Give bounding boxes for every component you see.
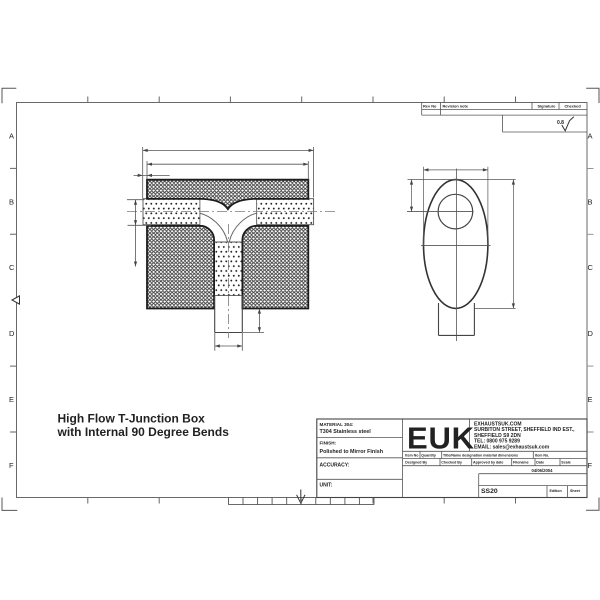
- svg-text:SS20: SS20: [481, 488, 498, 495]
- svg-text:F: F: [9, 461, 14, 470]
- svg-text:EUK: EUK: [407, 420, 475, 455]
- svg-text:E: E: [9, 395, 14, 404]
- svg-text:Filename: Filename: [513, 460, 529, 464]
- svg-text:High Flow T-Junction Box: High Flow T-Junction Box: [58, 412, 206, 426]
- svg-text:Designed By: Designed By: [405, 460, 427, 464]
- svg-text:T304 Stainless steel: T304 Stainless steel: [320, 429, 372, 435]
- svg-text:A: A: [9, 131, 14, 140]
- svg-text:Checked: Checked: [565, 104, 582, 109]
- svg-text:Signature: Signature: [538, 104, 557, 109]
- svg-text:Title/Name designation materia: Title/Name designation material dimensio…: [443, 453, 518, 457]
- svg-text:Item No.: Item No.: [535, 453, 549, 457]
- svg-text:B: B: [588, 197, 593, 206]
- svg-text:D: D: [588, 329, 594, 338]
- svg-text:Item No: Item No: [405, 453, 419, 457]
- svg-text:0.8: 0.8: [557, 120, 564, 126]
- svg-text:Date: Date: [536, 460, 544, 464]
- svg-text:Scale: Scale: [561, 460, 570, 464]
- svg-text:Approved by date: Approved by date: [473, 460, 503, 464]
- svg-text:C: C: [588, 263, 594, 272]
- svg-text:UNIT:: UNIT:: [320, 483, 333, 489]
- svg-text:Edition: Edition: [550, 489, 562, 493]
- svg-text:B: B: [9, 197, 14, 206]
- svg-text:A: A: [588, 131, 593, 140]
- svg-text:EMAIL: sales@exhaustsuk.com: EMAIL: sales@exhaustsuk.com: [474, 445, 550, 451]
- svg-text:D: D: [9, 329, 15, 338]
- svg-text:F: F: [588, 461, 593, 470]
- svg-text:with Internal 90 Degree Bends: with Internal 90 Degree Bends: [57, 425, 230, 439]
- svg-text:MATERIAL 304:: MATERIAL 304:: [320, 422, 354, 427]
- svg-text:FINISH:: FINISH:: [320, 440, 337, 445]
- svg-text:Revision note: Revision note: [443, 104, 469, 109]
- svg-text:04/06/2004: 04/06/2004: [532, 468, 554, 473]
- svg-text:C: C: [9, 263, 15, 272]
- svg-text:ACCURACY:: ACCURACY:: [320, 463, 350, 469]
- svg-text:Quantity: Quantity: [421, 453, 436, 457]
- svg-text:E: E: [588, 395, 593, 404]
- svg-text:Checked By: Checked By: [441, 460, 462, 464]
- svg-text:Polished to Mirror Finish: Polished to Mirror Finish: [320, 449, 384, 455]
- svg-text:Sheet: Sheet: [570, 489, 581, 493]
- svg-text:Rev No: Rev No: [423, 104, 437, 109]
